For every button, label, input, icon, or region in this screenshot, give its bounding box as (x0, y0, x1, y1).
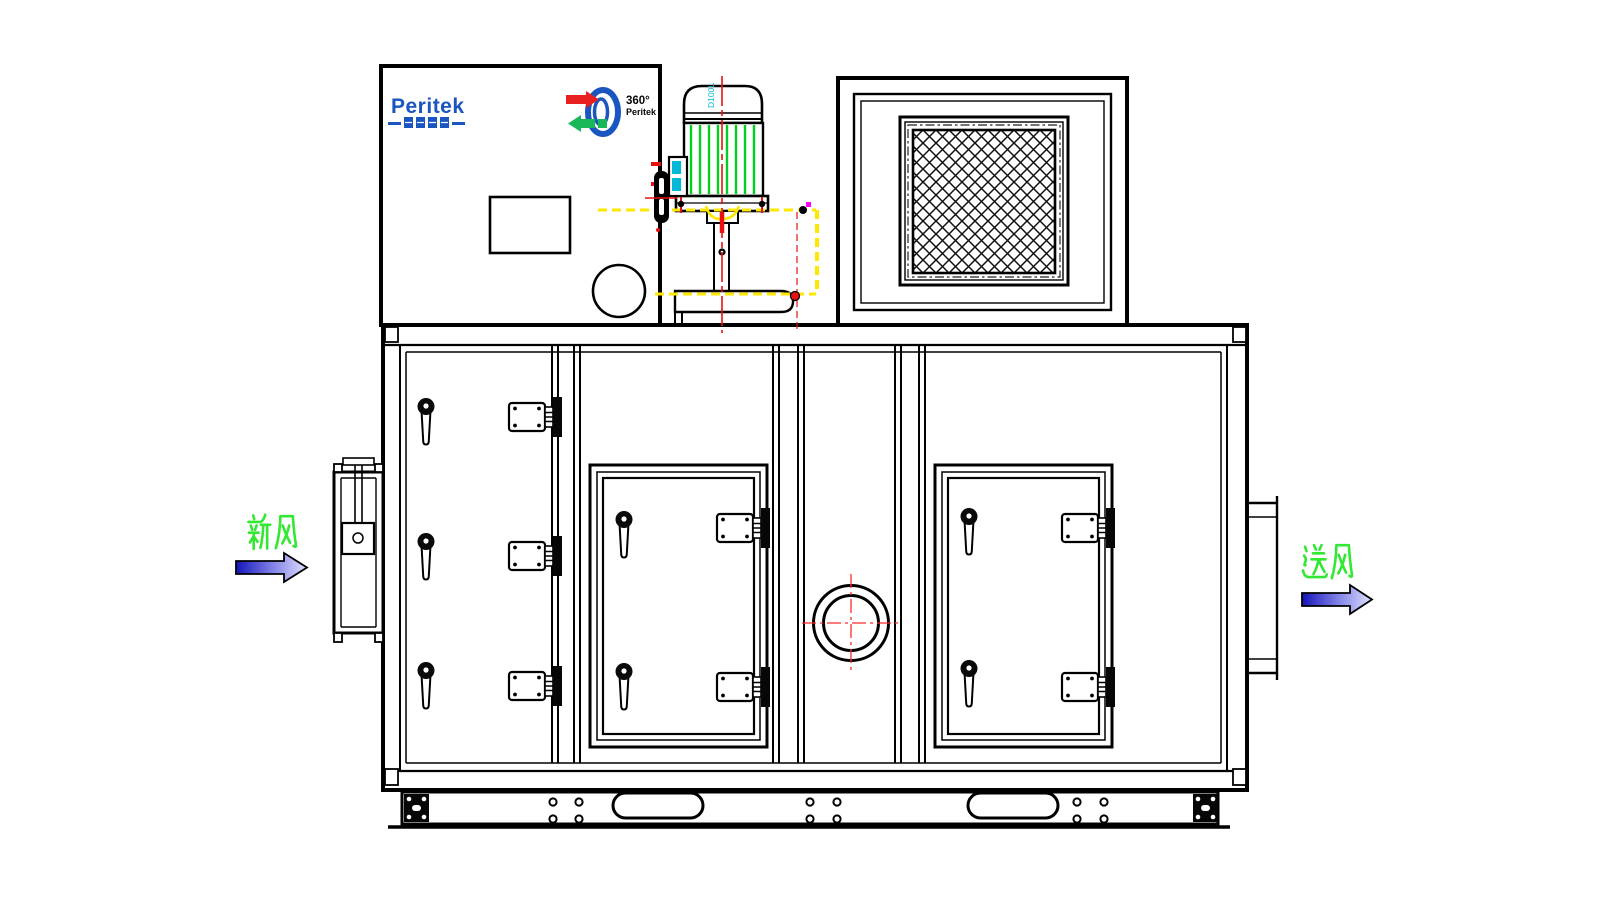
door-latch (717, 508, 770, 548)
corner-notch-top-left (385, 327, 398, 342)
inlet-airflow (236, 515, 307, 582)
rotor-inlet-arrow-icon (566, 95, 586, 104)
damper-handle-bar (343, 458, 374, 465)
forklift-slot-left (613, 793, 703, 818)
outlet-flange (1247, 496, 1277, 680)
access-door-right (935, 465, 1115, 747)
filter-mesh (913, 130, 1055, 273)
top-right-box (838, 78, 1127, 325)
top-left-box: Peritek 360° Peritek (381, 66, 660, 325)
shaft-seal-symbol (654, 171, 669, 223)
base-bracket-left (404, 794, 429, 822)
base-bracket-right (1193, 794, 1218, 822)
drawing-canvas: Peritek 360° Peritek (0, 0, 1613, 897)
panel-latch (509, 666, 562, 706)
corner-notch-bottom-right (1233, 769, 1246, 785)
inlet-arrow-icon (236, 553, 307, 582)
corner-notch-bottom-left (385, 769, 398, 785)
motor-cap (684, 86, 762, 123)
red-bolt-marker (791, 292, 800, 301)
magenta-marker (806, 202, 811, 207)
inlet-damper (334, 458, 383, 642)
access-door-middle (590, 465, 770, 747)
bolt-marker (799, 206, 807, 214)
outlet-label-glyphs (1303, 545, 1352, 578)
motor-body (684, 123, 763, 196)
inlet-label-glyphs (248, 515, 296, 549)
brand-name-text: Peritek (391, 95, 465, 118)
outlet-airflow (1302, 545, 1372, 614)
outlet-arrow-icon (1302, 585, 1372, 614)
panel-latch (509, 536, 562, 576)
door-latch (717, 667, 770, 707)
forklift-slot-right (968, 793, 1058, 818)
rotor-degree-text: 360° (626, 95, 650, 107)
panel-latch (509, 397, 562, 437)
motor-frame-label: D100L (706, 83, 716, 108)
corner-notch-top-right (1233, 327, 1246, 342)
door-latch (1062, 667, 1115, 707)
base-frame (388, 792, 1230, 827)
door-latch (1062, 508, 1115, 548)
rotor-brand-text: Peritek (626, 107, 657, 117)
filter-grille (900, 117, 1068, 285)
cad-drawing: Peritek 360° Peritek (0, 0, 1613, 897)
